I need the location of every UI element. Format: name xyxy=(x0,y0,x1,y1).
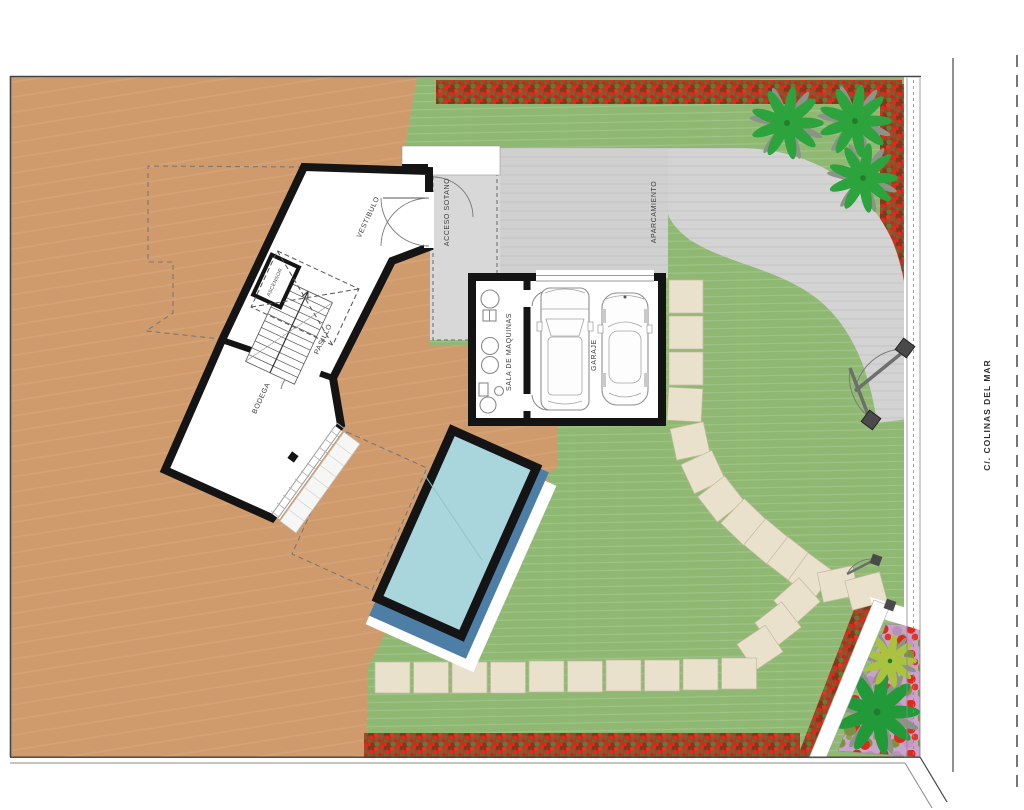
parking-texture xyxy=(498,148,668,278)
room-label-sala-de-maquinas: SALA DE MAQUINAS xyxy=(506,313,513,391)
area-label-aparcamiento: APARCAMIENTO xyxy=(651,181,658,244)
hedge-bottom xyxy=(364,733,800,758)
site-plan-drawing: VESTIBULO ACCESO SOTANO APARCAMIENTO PAS… xyxy=(0,0,1024,810)
entrance-door-gap xyxy=(424,192,434,248)
garage-door-gap xyxy=(536,270,654,284)
machine-room-door-gap2 xyxy=(522,394,532,411)
room-label-acceso-sotano: ACCESO SOTANO xyxy=(444,178,451,246)
site-plan-page: VESTIBULO ACCESO SOTANO APARCAMIENTO PAS… xyxy=(0,0,1024,810)
hedge-top xyxy=(436,80,902,104)
machine-room-door-gap1 xyxy=(522,290,532,307)
car-sedan xyxy=(598,293,652,405)
room-label-garaje: GARAJE xyxy=(591,339,598,371)
street-name-label: C/. COLINAS DEL MAR xyxy=(982,359,992,470)
car-suv xyxy=(537,288,593,410)
